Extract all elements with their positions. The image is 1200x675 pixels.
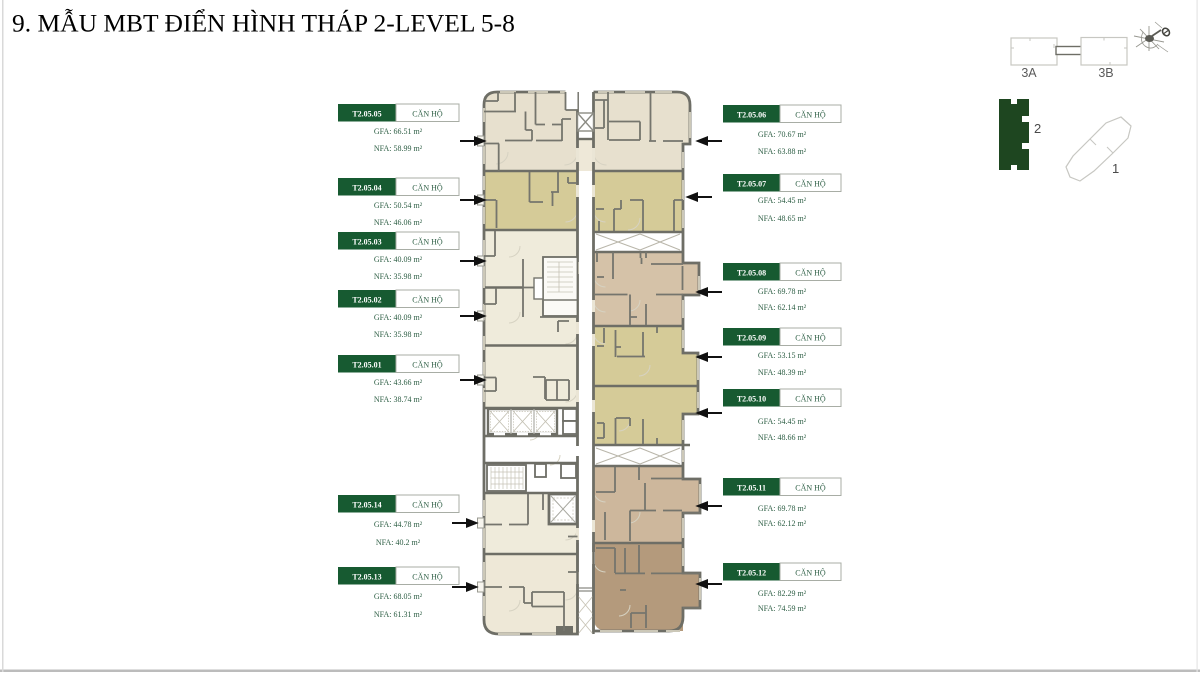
svg-text:GFA: 69.78 m²: GFA: 69.78 m²: [758, 287, 807, 296]
svg-text:GFA: 54.45 m²: GFA: 54.45 m²: [758, 196, 807, 205]
svg-text:9. MẪU MBT ĐIỂN HÌNH THÁP 2-LE: 9. MẪU MBT ĐIỂN HÌNH THÁP 2-LEVEL 5-8: [12, 9, 515, 38]
svg-text:T2.05.07: T2.05.07: [737, 180, 766, 189]
svg-text:CĂN HỘ: CĂN HỘ: [412, 360, 443, 370]
svg-text:T2.05.14: T2.05.14: [352, 501, 381, 510]
svg-text:T2.05.10: T2.05.10: [737, 395, 766, 404]
svg-text:2: 2: [1034, 121, 1041, 136]
svg-text:GFA: 68.05 m²: GFA: 68.05 m²: [374, 592, 423, 601]
svg-text:CĂN HỘ: CĂN HỘ: [795, 110, 826, 120]
svg-text:NFA: 62.12 m²: NFA: 62.12 m²: [758, 519, 807, 528]
svg-text:NFA: 35.98 m²: NFA: 35.98 m²: [374, 272, 423, 281]
svg-text:CĂN HỘ: CĂN HỘ: [412, 183, 443, 193]
svg-text:NFA: 58.99 m²: NFA: 58.99 m²: [374, 144, 423, 153]
svg-text:T2.05.03: T2.05.03: [352, 238, 381, 247]
svg-text:CĂN HỘ: CĂN HỘ: [795, 483, 826, 493]
svg-text:GFA: 69.78 m²: GFA: 69.78 m²: [758, 504, 807, 513]
svg-text:CĂN HỘ: CĂN HỘ: [412, 572, 443, 582]
svg-text:3B: 3B: [1098, 66, 1113, 80]
svg-text:T2.05.05: T2.05.05: [352, 110, 381, 119]
svg-text:NFA: 48.65 m²: NFA: 48.65 m²: [758, 214, 807, 223]
svg-text:CĂN HỘ: CĂN HỘ: [795, 179, 826, 189]
svg-text:T2.05.09: T2.05.09: [737, 334, 766, 343]
svg-text:NFA: 48.39 m²: NFA: 48.39 m²: [758, 368, 807, 377]
svg-text:T2.05.01: T2.05.01: [352, 361, 381, 370]
svg-text:CĂN HỘ: CĂN HỘ: [795, 568, 826, 578]
svg-text:GFA: 40.09 m²: GFA: 40.09 m²: [374, 313, 423, 322]
svg-text:GFA: 66.51 m²: GFA: 66.51 m²: [374, 127, 423, 136]
svg-text:T2.05.04: T2.05.04: [352, 184, 381, 193]
svg-text:NFA: 48.66 m²: NFA: 48.66 m²: [758, 433, 807, 442]
svg-text:GFA: 50.54 m²: GFA: 50.54 m²: [374, 201, 423, 210]
svg-text:T2.05.06: T2.05.06: [737, 111, 766, 120]
svg-text:GFA: 54.45 m²: GFA: 54.45 m²: [758, 417, 807, 426]
svg-text:GFA: 53.15 m²: GFA: 53.15 m²: [758, 351, 807, 360]
svg-text:GFA: 44.78 m²: GFA: 44.78 m²: [374, 520, 423, 529]
svg-text:CĂN HỘ: CĂN HỘ: [412, 500, 443, 510]
svg-text:NFA: 46.06 m²: NFA: 46.06 m²: [374, 218, 423, 227]
svg-text:GFA: 70.67 m²: GFA: 70.67 m²: [758, 130, 807, 139]
svg-text:CĂN HỘ: CĂN HỘ: [795, 333, 826, 343]
svg-text:T2.05.02: T2.05.02: [352, 296, 381, 305]
svg-text:T2.05.13: T2.05.13: [352, 573, 381, 582]
svg-text:NFA: 35.98 m²: NFA: 35.98 m²: [374, 330, 423, 339]
svg-text:NFA: 63.88 m²: NFA: 63.88 m²: [758, 147, 807, 156]
svg-text:NFA: 40.2 m²: NFA: 40.2 m²: [376, 538, 421, 547]
svg-text:T2.05.11: T2.05.11: [737, 484, 766, 493]
svg-text:CĂN HỘ: CĂN HỘ: [795, 394, 826, 404]
svg-text:T2.05.12: T2.05.12: [737, 569, 766, 578]
svg-text:CĂN HỘ: CĂN HỘ: [412, 237, 443, 247]
svg-text:CĂN HỘ: CĂN HỘ: [795, 268, 826, 278]
svg-text:CĂN HỘ: CĂN HỘ: [412, 109, 443, 119]
svg-text:1: 1: [1112, 161, 1119, 176]
svg-text:GFA: 40.09 m²: GFA: 40.09 m²: [374, 255, 423, 264]
svg-text:3A: 3A: [1021, 66, 1037, 80]
svg-text:NFA: 38.74 m²: NFA: 38.74 m²: [374, 395, 423, 404]
svg-text:GFA: 82.29 m²: GFA: 82.29 m²: [758, 589, 807, 598]
svg-text:CĂN HỘ: CĂN HỘ: [412, 295, 443, 305]
svg-text:GFA: 43.66 m²: GFA: 43.66 m²: [374, 378, 423, 387]
svg-text:NFA: 74.59 m²: NFA: 74.59 m²: [758, 604, 807, 613]
svg-text:NFA: 61.31 m²: NFA: 61.31 m²: [374, 610, 423, 619]
svg-text:NFA: 62.14 m²: NFA: 62.14 m²: [758, 303, 807, 312]
svg-text:T2.05.08: T2.05.08: [737, 269, 766, 278]
